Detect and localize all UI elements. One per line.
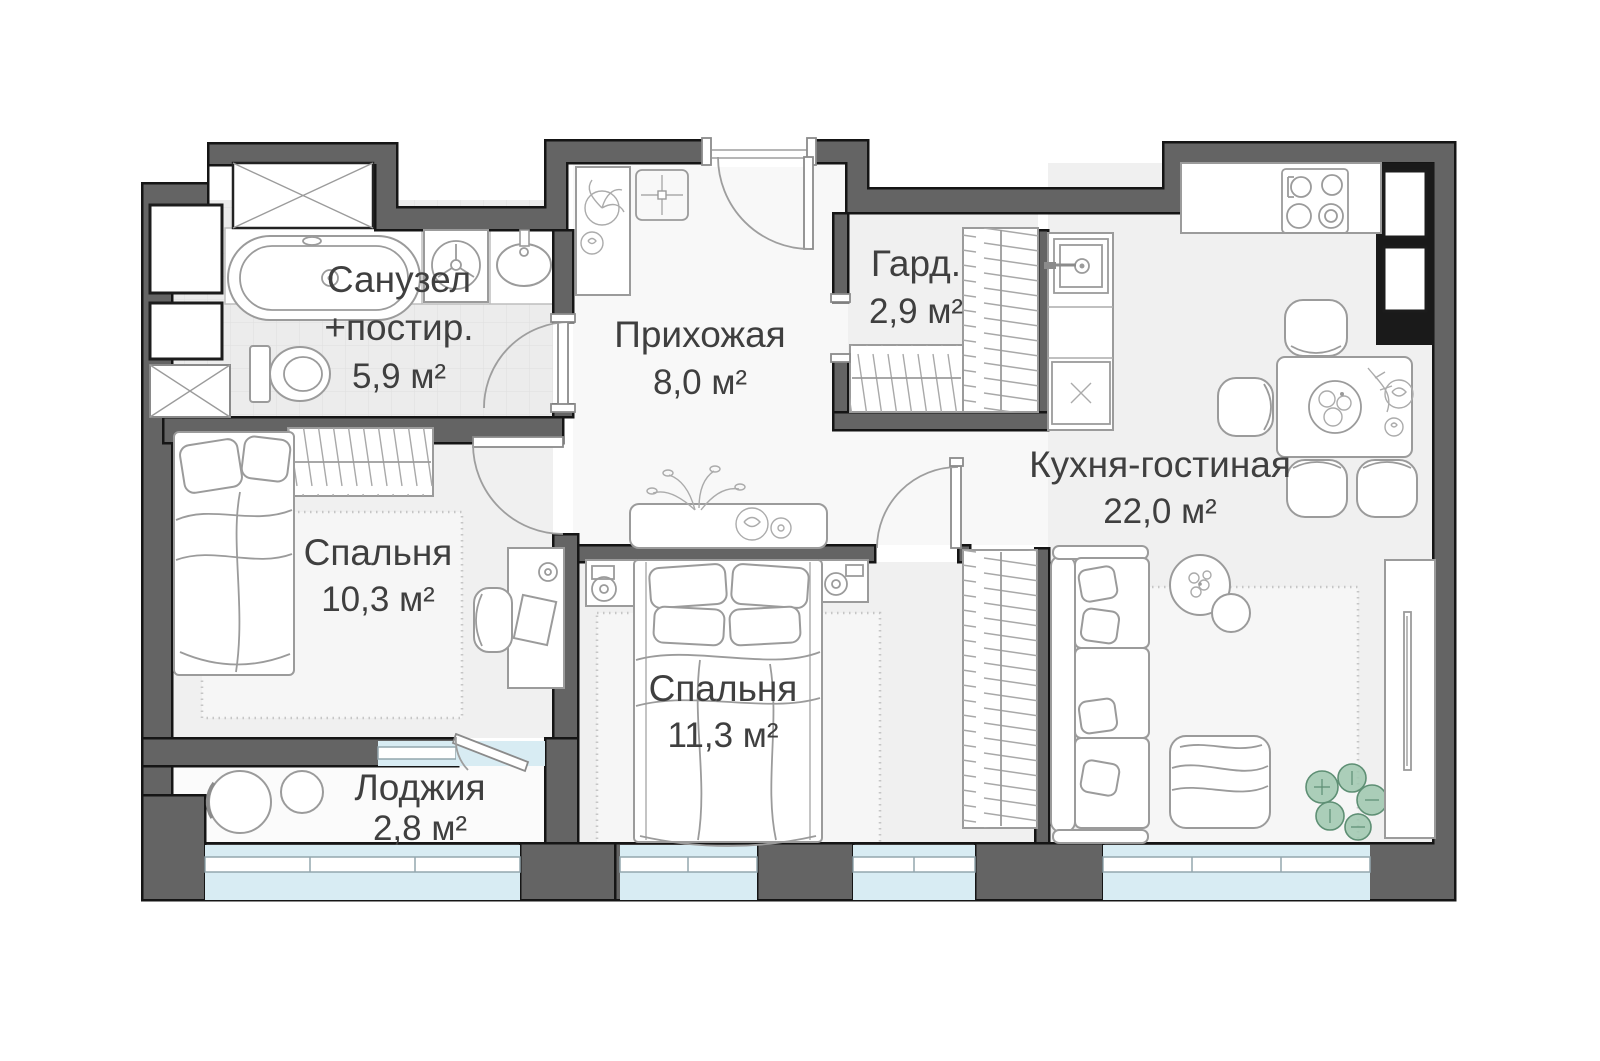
pier-loggia-left (142, 795, 205, 900)
window-loggia-inner (378, 741, 456, 766)
dining-chair-left (1218, 378, 1273, 436)
desk-chair (474, 588, 512, 652)
loggia-area: 2,8 м² (373, 809, 467, 848)
window-bedroom2-a (620, 845, 757, 900)
wardrobe-label: Гард. (871, 243, 961, 284)
faucet-icon (1044, 262, 1056, 269)
sofa-pillow (1078, 698, 1118, 735)
hallway-console (576, 167, 630, 295)
left-wall-niches (150, 205, 230, 417)
bathroom-door-leaf (558, 320, 568, 408)
kitchen-counter-left (1048, 233, 1113, 430)
dining-table (1277, 357, 1412, 457)
dining-chair-top (1285, 300, 1347, 356)
bed-pillow (179, 438, 244, 494)
balcony-door (453, 734, 545, 771)
floor-plan: Санузел +постир. 5,9 м² Прихожая 8,0 м² … (0, 0, 1600, 1061)
bathroom-area: 5,9 м² (352, 357, 446, 396)
bed-pillow (653, 606, 725, 646)
bedroom2-area: 11,3 м² (668, 716, 779, 755)
dining-chair-bottom-left (1287, 460, 1347, 517)
kitchen-counter-top (1181, 163, 1381, 233)
nightstand-left (586, 560, 636, 606)
vent-shaft-1 (1384, 171, 1426, 237)
ottoman (1170, 736, 1270, 828)
bed-pillow (731, 563, 810, 608)
hallway-area: 8,0 м² (653, 363, 747, 402)
desk (508, 548, 564, 688)
wall-wardrobe-left-upper (833, 213, 848, 302)
bed-pillow (729, 606, 801, 646)
wardrobe-closet-horizontal (850, 345, 963, 412)
kitchen-living-area: 22,0 м² (1103, 492, 1217, 531)
sofa-pillow (1080, 608, 1120, 645)
window-loggia (205, 845, 520, 900)
shaft-top-bathroom (233, 163, 373, 228)
wall-wardrobe-bottom (833, 412, 1048, 430)
sofa-pillow (1077, 565, 1118, 603)
bedroom1-area: 10,3 м² (321, 580, 435, 619)
wardrobe-closet-vertical (963, 228, 1038, 412)
loggia-chair-large (209, 771, 271, 833)
bathroom-label: Санузел (327, 259, 471, 300)
nightstand-right (820, 560, 868, 602)
window-bedroom2-b (853, 845, 975, 900)
corridor-floor (848, 430, 1048, 545)
entrance-door-leaf (804, 157, 813, 249)
wall-bath-hall-upper (553, 230, 573, 322)
duct-block-right (1376, 163, 1434, 345)
bedroom2-label: Спальня (649, 668, 798, 709)
dining-chair-bottom-right (1357, 460, 1417, 517)
bedroom1-closet (288, 428, 433, 496)
bed-pillow (241, 435, 292, 482)
bed-pillow (649, 563, 728, 608)
bathroom-label-2: +постир. (324, 307, 473, 348)
pier-bottom-3 (975, 843, 1103, 900)
niche-box-1 (150, 205, 222, 293)
sofa-pillow (1079, 759, 1120, 797)
entrance-jamb-left (702, 138, 711, 165)
floor-plan-canvas: Санузел +постир. 5,9 м² Прихожая 8,0 м² … (0, 0, 1600, 1061)
wardrobe-area: 2,9 м² (869, 292, 963, 331)
vent-shaft-2 (1384, 247, 1426, 311)
wall-wardrobe-kitchen (1038, 230, 1048, 412)
bedroom1-label: Спальня (304, 532, 453, 573)
sofa (1051, 546, 1149, 843)
pier-bottom-1 (520, 843, 615, 900)
loggia-chair-small (281, 771, 323, 813)
single-bed (174, 432, 294, 675)
kitchen-living-label: Кухня-гостиная (1029, 444, 1291, 485)
bedroom2-closet (963, 550, 1037, 828)
hallway-label: Прихожая (614, 314, 785, 355)
tv-unit (1385, 560, 1435, 838)
window-living (1103, 845, 1370, 900)
pier-bottom-2 (757, 843, 853, 900)
shaft-x-box (150, 365, 230, 417)
loggia-label: Лоджия (354, 767, 485, 808)
niche-box-2 (150, 303, 222, 359)
bedroom2-door-leaf (951, 466, 961, 548)
wall-loggia-right (545, 738, 578, 848)
bedroom1-door-leaf (473, 437, 563, 447)
toilet (250, 346, 330, 402)
